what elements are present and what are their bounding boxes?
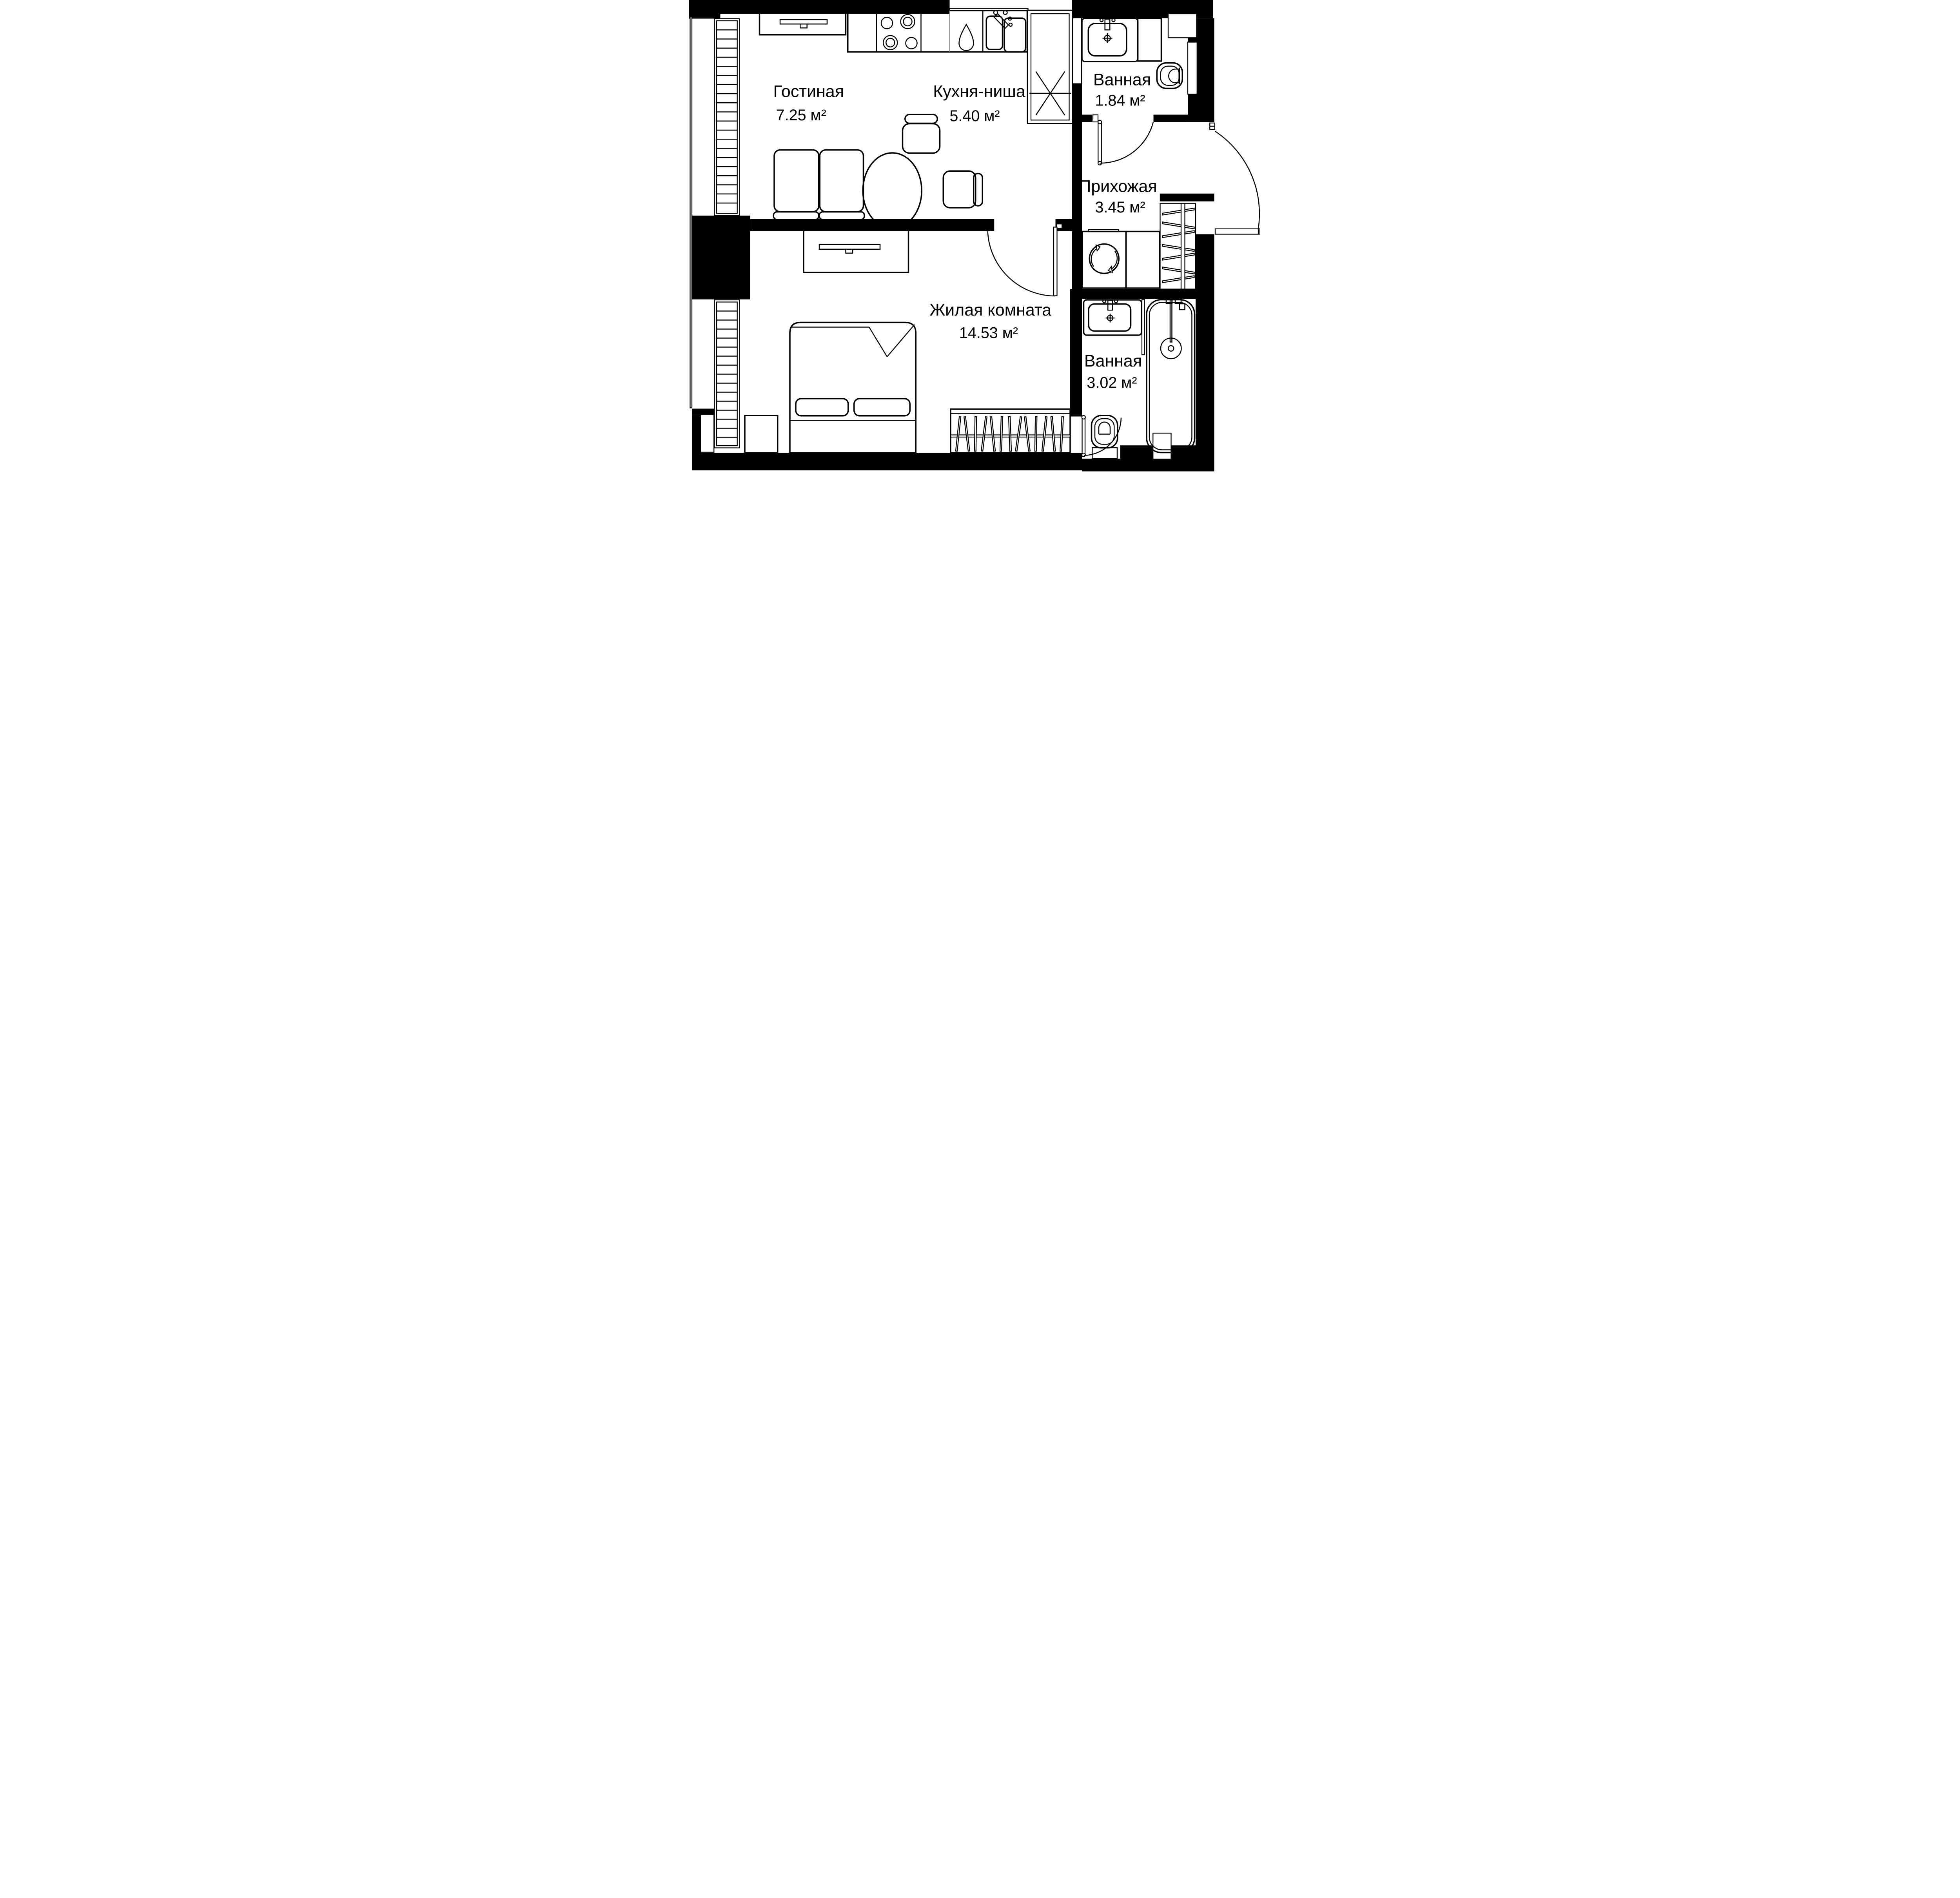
facade-glass-line [690,17,692,408]
kitchen-sink [986,11,1025,52]
nightstand [745,416,778,453]
vent-shaft [1027,10,1073,123]
bath2-door-arc [1084,418,1122,456]
label-bathroom-bottom: Ванная [1084,352,1142,370]
floor-plan: Гостиная 7.25 м² Кухня-ниша 5.40 м² Ванн… [686,0,1274,475]
area-bathroom-top: 1.84 м² [1095,92,1145,109]
bed [790,323,916,453]
dining-table [863,153,922,229]
tv-icon-bedroom [819,245,880,249]
area-kitchen: 5.40 м² [949,107,1000,125]
stove-icon [881,15,917,50]
riser-shaft [1188,42,1197,94]
sofa [773,150,864,220]
area-living-room: 7.25 м² [776,107,826,124]
window-living [715,19,740,216]
toilet-top [1157,63,1182,89]
bath-screen [1142,299,1145,355]
bathtub-drain [1161,338,1181,359]
left-wall-niche [701,415,714,452]
floor-plan-page: Гостиная 7.25 м² Кухня-ниша 5.40 м² Ванн… [686,0,1274,475]
entry-door-leaf [1215,229,1258,234]
bath1-door [1093,115,1153,165]
bath1-door-arc [1100,122,1154,163]
chair-top [903,114,940,153]
wardrobe [951,409,1070,453]
tv-console-bedroom [804,229,909,273]
bathtub [1147,298,1195,453]
bath1-door-leaf [1098,122,1102,163]
bedroom-door [988,224,1062,296]
bath2-vanity-sink [1084,300,1142,335]
chair-right [943,171,982,208]
bedroom-door-leaf [1054,227,1057,296]
blanket-fold [869,327,887,357]
entry-door-arc [1215,131,1259,230]
pillow-left [796,399,848,416]
entry-door [1210,123,1259,235]
label-bathroom-top: Ванная [1093,71,1151,89]
tv-console-living [760,11,846,35]
bath1-vanity-sink [1082,18,1138,62]
area-bedroom: 14.53 м² [959,325,1018,342]
entry-closet [1160,203,1196,289]
entry-cabinet [1126,232,1160,289]
washing-machine [1082,230,1126,289]
label-living-room: Гостиная [773,82,844,101]
pillow-right [854,399,910,416]
area-bathroom-bottom: 3.02 м² [1087,374,1137,392]
label-kitchen: Кухня-ниша [933,82,1025,101]
toilet-bottom [1092,416,1118,459]
bedroom-door-arc [988,229,1056,296]
bath1-cabinet [1138,18,1161,61]
label-bedroom: Жилая комната [929,301,1051,319]
bottom-wall-niche [1153,433,1171,459]
shaft-niche [1168,14,1197,38]
tv-icon [780,20,827,24]
bath2-door-leaf [1082,417,1085,455]
hangers [956,417,1063,451]
bedroom [745,224,1070,453]
window-bedroom [715,300,740,448]
area-entry: 3.45 м² [1095,199,1145,216]
bathroom-top [1082,18,1182,165]
label-entry: Прихожая [1079,177,1157,196]
bath2-door [1082,416,1121,457]
kitchen [848,11,1027,52]
closet-divider [1181,203,1185,289]
water-drop-icon [959,25,974,51]
